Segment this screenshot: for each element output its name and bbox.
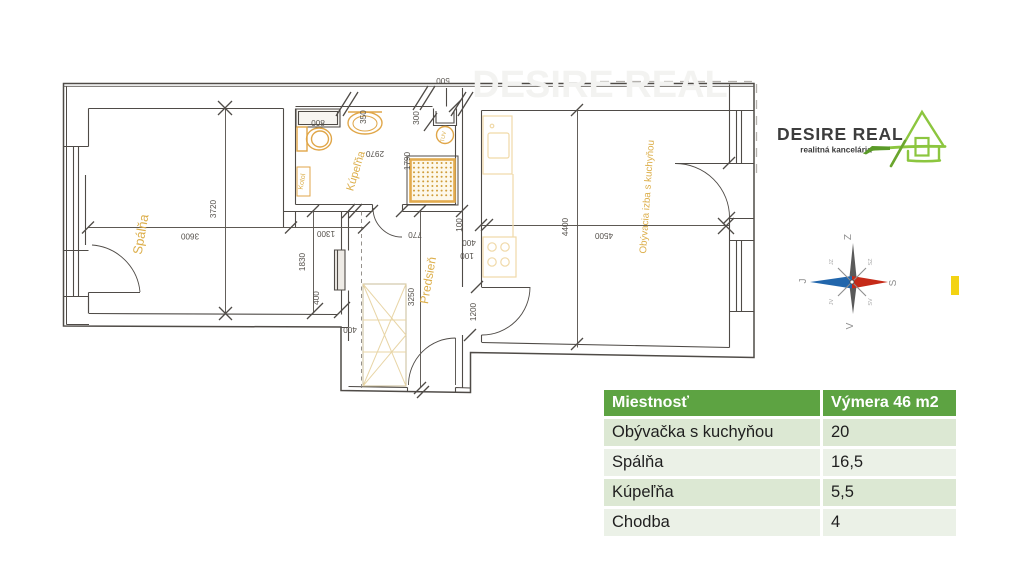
svg-text:V: V xyxy=(845,322,856,329)
svg-text:350: 350 xyxy=(359,110,368,124)
svg-text:4500: 4500 xyxy=(594,231,613,240)
svg-text:SV: SV xyxy=(868,298,874,306)
svg-text:S: S xyxy=(888,279,899,286)
svg-text:500: 500 xyxy=(436,76,450,85)
svg-text:realitná kancelária: realitná kancelária xyxy=(800,146,872,155)
svg-text:800: 800 xyxy=(311,118,325,127)
svg-text:Obývacia izba s kuchyňou: Obývacia izba s kuchyňou xyxy=(638,140,657,254)
svg-text:SZ: SZ xyxy=(868,258,874,266)
svg-text:Kotol: Kotol xyxy=(298,173,308,190)
svg-text:Spálňa: Spálňa xyxy=(130,212,152,255)
svg-text:3720: 3720 xyxy=(209,199,218,218)
svg-text:DESIRE REAL: DESIRE REAL xyxy=(472,64,727,106)
svg-text:400: 400 xyxy=(343,325,357,334)
svg-text:2970: 2970 xyxy=(365,149,384,158)
svg-text:DESIRE REAL: DESIRE REAL xyxy=(777,124,903,144)
svg-text:J: J xyxy=(798,279,809,284)
svg-text:770: 770 xyxy=(408,230,422,239)
svg-text:4400: 4400 xyxy=(561,217,570,236)
svg-text:TUV: TUV xyxy=(440,131,448,143)
svg-text:1200: 1200 xyxy=(469,302,478,321)
svg-text:100: 100 xyxy=(460,251,474,260)
svg-text:JV: JV xyxy=(829,298,835,305)
svg-text:400: 400 xyxy=(312,291,321,305)
svg-text:JZ: JZ xyxy=(829,258,835,265)
svg-text:1830: 1830 xyxy=(298,252,307,271)
svg-text:3250: 3250 xyxy=(407,287,416,306)
svg-text:Kúpeľňa: Kúpeľňa xyxy=(344,149,368,193)
svg-text:1790: 1790 xyxy=(403,151,412,170)
svg-text:Z: Z xyxy=(843,234,854,240)
svg-text:1300: 1300 xyxy=(316,229,335,238)
svg-text:3600: 3600 xyxy=(180,232,199,241)
svg-text:400: 400 xyxy=(462,238,476,247)
svg-text:300: 300 xyxy=(412,111,421,125)
svg-text:100: 100 xyxy=(455,218,464,232)
